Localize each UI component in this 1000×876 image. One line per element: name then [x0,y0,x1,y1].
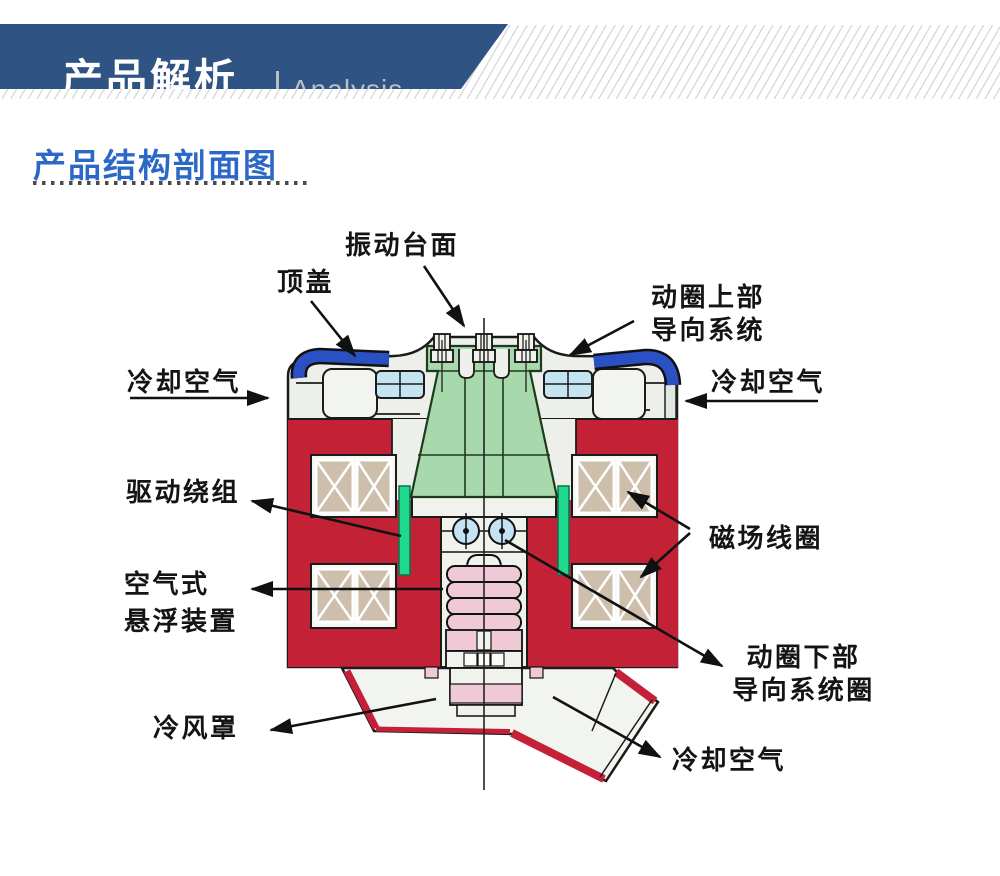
cross-section-diagram [0,0,1000,876]
label-upper-guide: 动圈上部 导向系统 [628,281,788,347]
label-top-cover: 顶盖 [277,266,334,299]
label-vibration-table: 振动台面 [345,229,459,262]
label-cold-hood: 冷风罩 [153,712,239,745]
page: 产品解析 Analysis 产品结构剖面图 [0,0,1000,876]
arrow-upper-guide [570,321,634,355]
label-drive-winding: 驱动绕组 [126,476,240,509]
label-field-coil: 磁场线圈 [709,522,823,555]
label-cooling-air-left: 冷却空气 [127,366,241,399]
label-cooling-air-right: 冷却空气 [711,366,825,399]
arrow-vibration-table [424,266,464,326]
t-slot-left [459,349,474,378]
t-slot-right [494,349,509,378]
label-air-suspension: 空气式 悬浮装置 [124,566,238,640]
label-cooling-air-bottom: 冷却空气 [672,744,786,777]
arrow-top-cover [311,301,355,356]
label-lower-guide: 动圈下部 导向系统圈 [716,641,891,707]
